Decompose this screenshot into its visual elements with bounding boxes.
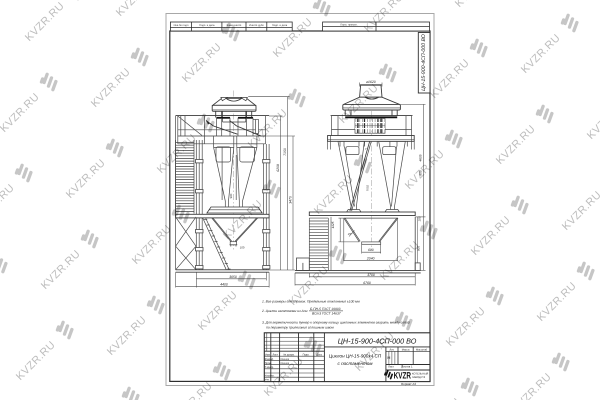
svg-text:3470: 3470 — [289, 196, 293, 204]
svg-text:KVZR.RU: KVZR.RU — [519, 32, 563, 76]
svg-text:Листов 1: Листов 1 — [402, 366, 413, 369]
svg-text:KVZR.RU: KVZR.RU — [560, 189, 600, 233]
svg-text:Инв.№ дубл: Инв.№ дубл — [249, 24, 264, 27]
svg-text:KVZR: KVZR — [394, 371, 412, 381]
svg-text:Лист: Лист — [272, 353, 278, 356]
svg-text:Н.контр.: Н.контр. — [265, 375, 275, 378]
svg-text:KVZR.RU: KVZR.RU — [428, 57, 472, 101]
svg-text:KVZR.RU: KVZR.RU — [469, 214, 513, 258]
svg-text:KVZR.RU: KVZR.RU — [444, 305, 488, 349]
svg-text:KVZR.RU: KVZR.RU — [453, 0, 497, 10]
svg-text:1. Все размеры для справок. Пр: 1. Все размеры для справок. Предельные о… — [262, 300, 360, 304]
svg-text:Перв. примен.: Перв. примен. — [340, 24, 358, 27]
svg-text:KVZR.RU: KVZR.RU — [535, 280, 579, 324]
svg-text:KVZR.RU: KVZR.RU — [585, 98, 600, 142]
svg-text:по периметру прилегания сплошн: по периметру прилегания сплошным швом — [266, 325, 334, 329]
svg-text:2. Циклон изготовлен из Али: 2. Циклон изготовлен из Али — [261, 309, 308, 313]
svg-text:7150: 7150 — [283, 148, 287, 156]
svg-text:KVZR.RU: KVZR.RU — [0, 91, 42, 135]
svg-text:45°: 45° — [348, 232, 353, 236]
svg-text:Т.контр.: Т.контр. — [265, 366, 274, 369]
svg-text:KVZR.RU: KVZR.RU — [89, 66, 133, 110]
svg-text:980: 980 — [229, 193, 233, 198]
svg-text:Лит.: Лит. — [390, 348, 395, 351]
svg-text:6760: 6760 — [363, 281, 371, 285]
svg-text:600: 600 — [368, 248, 374, 252]
svg-text:KVZR.RU: KVZR.RU — [39, 248, 83, 292]
svg-text:Инв.№ подл: Инв.№ подл — [174, 24, 189, 27]
svg-text:ЦН-15-900-4СП-000 ВО: ЦН-15-900-4СП-000 ВО — [421, 34, 427, 91]
svg-text:Подп. и дата: Подп. и дата — [199, 24, 215, 27]
svg-text:Иванов: Иванов — [281, 358, 290, 361]
svg-text:3700: 3700 — [367, 273, 375, 277]
svg-text:1125: 1125 — [331, 221, 335, 228]
svg-text:ЗАВОД РФ: ЗАВОД РФ — [412, 376, 425, 379]
svg-text:KVZR.RU: KVZR.RU — [105, 314, 149, 358]
svg-text:KVZR.RU: KVZR.RU — [23, 0, 67, 44]
svg-text:KVZR.RU: KVZR.RU — [510, 371, 554, 400]
svg-text:KVZR.RU: KVZR.RU — [494, 123, 538, 167]
svg-text:Разраб.: Разраб. — [265, 358, 274, 361]
svg-text:Масса: Масса — [402, 348, 410, 351]
svg-text:3050: 3050 — [229, 275, 237, 279]
svg-text:2040: 2040 — [366, 256, 375, 260]
svg-text:Изм: Изм — [265, 353, 270, 356]
svg-text:Масштаб: Масштаб — [416, 348, 428, 351]
svg-text:KVZR.RU: KVZR.RU — [64, 157, 108, 201]
svg-text:Лист: Лист — [388, 366, 395, 369]
svg-text:7602: 7602 — [365, 184, 369, 191]
svg-text:KVZR.RU: KVZR.RU — [419, 396, 463, 400]
svg-text:КОТЕЛЬНЫЙ: КОТЕЛЬНЫЙ — [412, 371, 428, 375]
svg-text:№ докум.: № докум. — [284, 353, 295, 356]
svg-text:4605: 4605 — [419, 154, 423, 161]
svg-text:Подп.: Подп. — [303, 353, 310, 356]
svg-text:KVZR.RU: KVZR.RU — [14, 339, 58, 383]
svg-text:Утв.: Утв. — [265, 379, 270, 382]
svg-text:100: 100 — [240, 245, 245, 249]
svg-text:4400: 4400 — [220, 282, 228, 286]
svg-text:М: М — [387, 356, 390, 360]
svg-text:3. Для герметичности бункер к: 3. Для герметичности бункер к опорному к… — [262, 321, 410, 325]
svg-text:KVZR.RU: KVZR.RU — [0, 182, 17, 226]
svg-text:KVZR.RU: KVZR.RU — [114, 0, 158, 19]
svg-text:Пров.: Пров. — [265, 362, 272, 365]
svg-text:6208: 6208 — [276, 164, 280, 172]
svg-text:Формат А3: Формат А3 — [401, 382, 416, 386]
svg-text:ВСт3 ГОСТ 14637: ВСт3 ГОСТ 14637 — [312, 312, 341, 316]
svg-text:Б-ПН-5 ГОСТ 19903: Б-ПН-5 ГОСТ 19903 — [310, 307, 341, 311]
svg-text:Подп. и дата: Подп. и дата — [272, 24, 288, 27]
svg-text:100: 100 — [418, 216, 422, 221]
